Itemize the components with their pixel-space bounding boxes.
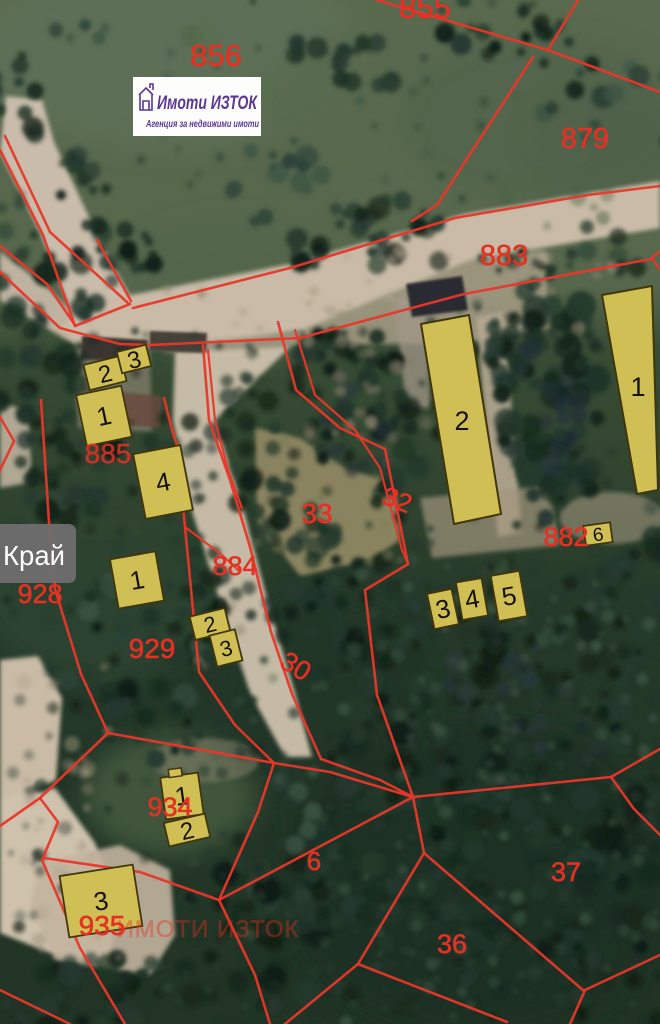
svg-text:883: 883 [480, 240, 528, 272]
svg-text:879: 879 [561, 123, 609, 155]
svg-text:882: 882 [543, 522, 588, 552]
svg-text:ИМОТИ ИЗТОК: ИМОТИ ИЗТОК [117, 916, 300, 943]
svg-text:37: 37 [551, 857, 581, 887]
svg-text:Агенция за недвижими имоти: Агенция за недвижими имоти [145, 119, 259, 130]
svg-text:855: 855 [399, 0, 451, 25]
svg-text:2: 2 [454, 406, 469, 436]
svg-text:36: 36 [437, 929, 467, 959]
svg-text:928: 928 [17, 579, 62, 609]
svg-text:Край: Край [3, 540, 65, 571]
svg-text:884: 884 [212, 551, 257, 581]
svg-text:1: 1 [630, 372, 645, 402]
svg-text:Имоти ИЗТОК: Имоти ИЗТОК [157, 92, 258, 114]
svg-text:856: 856 [190, 38, 242, 73]
svg-text:885: 885 [85, 438, 132, 469]
svg-text:6: 6 [307, 846, 321, 876]
svg-text:929: 929 [129, 633, 176, 664]
svg-text:33: 33 [301, 498, 332, 529]
svg-text:934: 934 [147, 792, 192, 822]
